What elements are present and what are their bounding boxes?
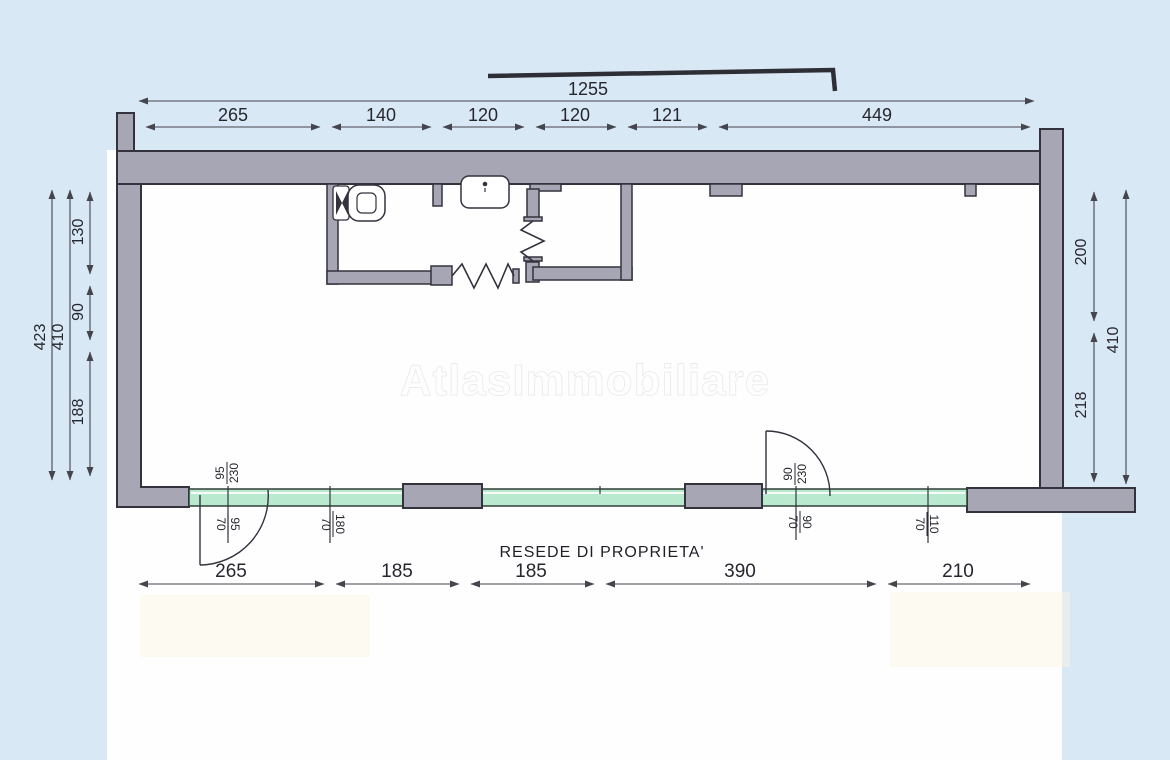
- dim-label: 265: [215, 561, 247, 582]
- pillar: [403, 484, 482, 508]
- opening-width: 95: [228, 517, 242, 531]
- paper-tint-left: [140, 595, 370, 657]
- wall-stub: [710, 184, 742, 196]
- dim-label: 265: [218, 105, 248, 125]
- resede-label: RESEDE DI PROPRIETA': [499, 544, 704, 561]
- dim-label: 90: [70, 303, 87, 321]
- dim-label: 200: [1073, 239, 1090, 266]
- dim-label: 1255: [568, 79, 608, 99]
- opening-height: 70: [913, 517, 927, 531]
- dim-label: 130: [70, 219, 87, 246]
- dim-label: 410: [1105, 327, 1122, 354]
- partition-frame-tick: [524, 217, 542, 221]
- bathroom-wall-bottom: [327, 271, 433, 284]
- opening-height: 230: [227, 463, 241, 483]
- door-frame-block: [431, 266, 452, 285]
- wc-bowl-inner: [357, 193, 376, 213]
- dim-label: 410: [50, 324, 67, 351]
- wc-fixture: [333, 185, 385, 221]
- top-wall: [117, 151, 1063, 184]
- paper-tint-right: [890, 592, 1070, 667]
- dim-label: 188: [70, 399, 87, 426]
- opening-height: 230: [795, 464, 809, 484]
- dim-label: 390: [724, 561, 756, 582]
- right-wall: [1040, 129, 1063, 497]
- dim-label: 210: [942, 561, 974, 582]
- opening-height: 70: [786, 515, 800, 529]
- sink-tap: [483, 182, 488, 187]
- wall-stub: [433, 184, 442, 206]
- paper-sheet: [107, 150, 1062, 760]
- dim-label: 185: [515, 561, 547, 582]
- opening-height: 70: [214, 517, 228, 531]
- dim-label: 121: [652, 105, 682, 125]
- opening-width: 180: [333, 514, 347, 534]
- dim-label: 423: [32, 324, 49, 351]
- sink-fixture: [461, 176, 509, 208]
- window-band: [189, 489, 967, 506]
- dim-label: 218: [1073, 392, 1090, 419]
- floor-plan-svg: AtlasImmobiliare: [0, 0, 1170, 760]
- dim-label: 140: [366, 105, 396, 125]
- opening-height: 70: [319, 517, 333, 531]
- floor-plan-scan: AtlasImmobiliare: [0, 0, 1170, 760]
- partition-wall: [527, 189, 539, 219]
- dim-label: 120: [560, 105, 590, 125]
- pillar: [685, 484, 762, 508]
- opening-width: 90: [800, 515, 814, 529]
- bathroom-wall-bottom-right: [533, 267, 632, 280]
- dim-label: 449: [862, 105, 892, 125]
- dim-label: 185: [381, 561, 413, 582]
- watermark-text: AtlasImmobiliare: [400, 356, 771, 405]
- wall-stub: [965, 184, 976, 196]
- dim-label: 120: [468, 105, 498, 125]
- opening-width: 90: [781, 467, 795, 481]
- bottom-right-wall: [967, 488, 1135, 512]
- bathroom-wall-right: [621, 184, 632, 280]
- opening-width: 110: [927, 514, 941, 533]
- opening-width: 95: [213, 466, 227, 480]
